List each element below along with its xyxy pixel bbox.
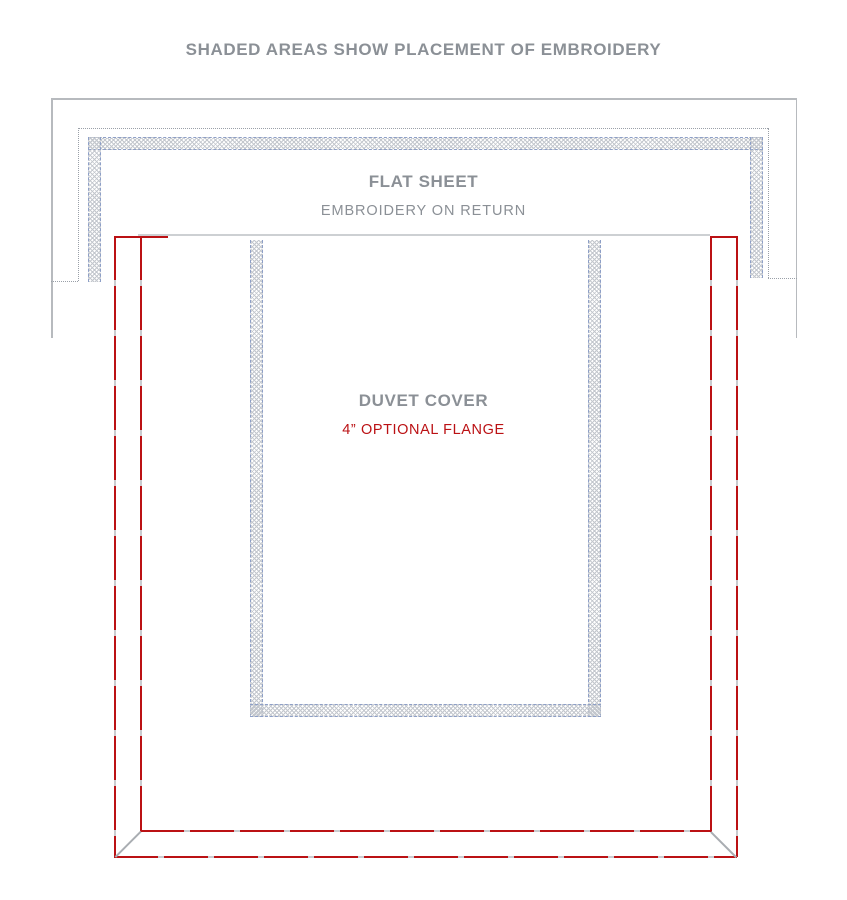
flat-sheet-fold-dotted-top	[78, 128, 768, 129]
duvet-embroidery-band-right	[588, 240, 601, 717]
embroidery-placement-diagram: SHADED AREAS SHOW PLACEMENT OF EMBROIDER…	[0, 0, 847, 900]
duvet-embroidery-band-bottom	[250, 704, 601, 717]
duvet-top-edge-red-right	[710, 236, 737, 238]
flat-sheet-outline-top	[51, 98, 797, 100]
duvet-inner-right	[710, 236, 712, 831]
duvet-outer-right	[736, 236, 738, 857]
duvet-outer-bottom	[114, 856, 737, 858]
duvet-labels: DUVET COVER 4” OPTIONAL FLANGE	[0, 391, 847, 438]
duvet-label: DUVET COVER	[0, 391, 847, 411]
flat-sheet-fold-dotted-bottom-left	[51, 281, 78, 282]
duvet-outer-left	[114, 236, 116, 857]
flat-sheet-embroidery-band-top	[88, 137, 763, 150]
flat-sheet-sublabel: EMBROIDERY ON RETURN	[0, 203, 847, 219]
duvet-top-edge-gray	[138, 234, 710, 236]
page-title: SHADED AREAS SHOW PLACEMENT OF EMBROIDER…	[0, 40, 847, 60]
duvet-flange-corner-left	[115, 831, 142, 858]
duvet-embroidery-band-left	[250, 240, 263, 717]
flat-sheet-fold-dotted-bottom-right	[768, 278, 797, 279]
duvet-flange-corner-right	[710, 831, 737, 858]
duvet-flange-sublabel: 4” OPTIONAL FLANGE	[0, 422, 847, 438]
duvet-inner-bottom	[140, 830, 712, 832]
duvet-inner-left	[140, 236, 142, 831]
flat-sheet-labels: FLAT SHEET EMBROIDERY ON RETURN	[0, 172, 847, 219]
flat-sheet-label: FLAT SHEET	[0, 172, 847, 192]
